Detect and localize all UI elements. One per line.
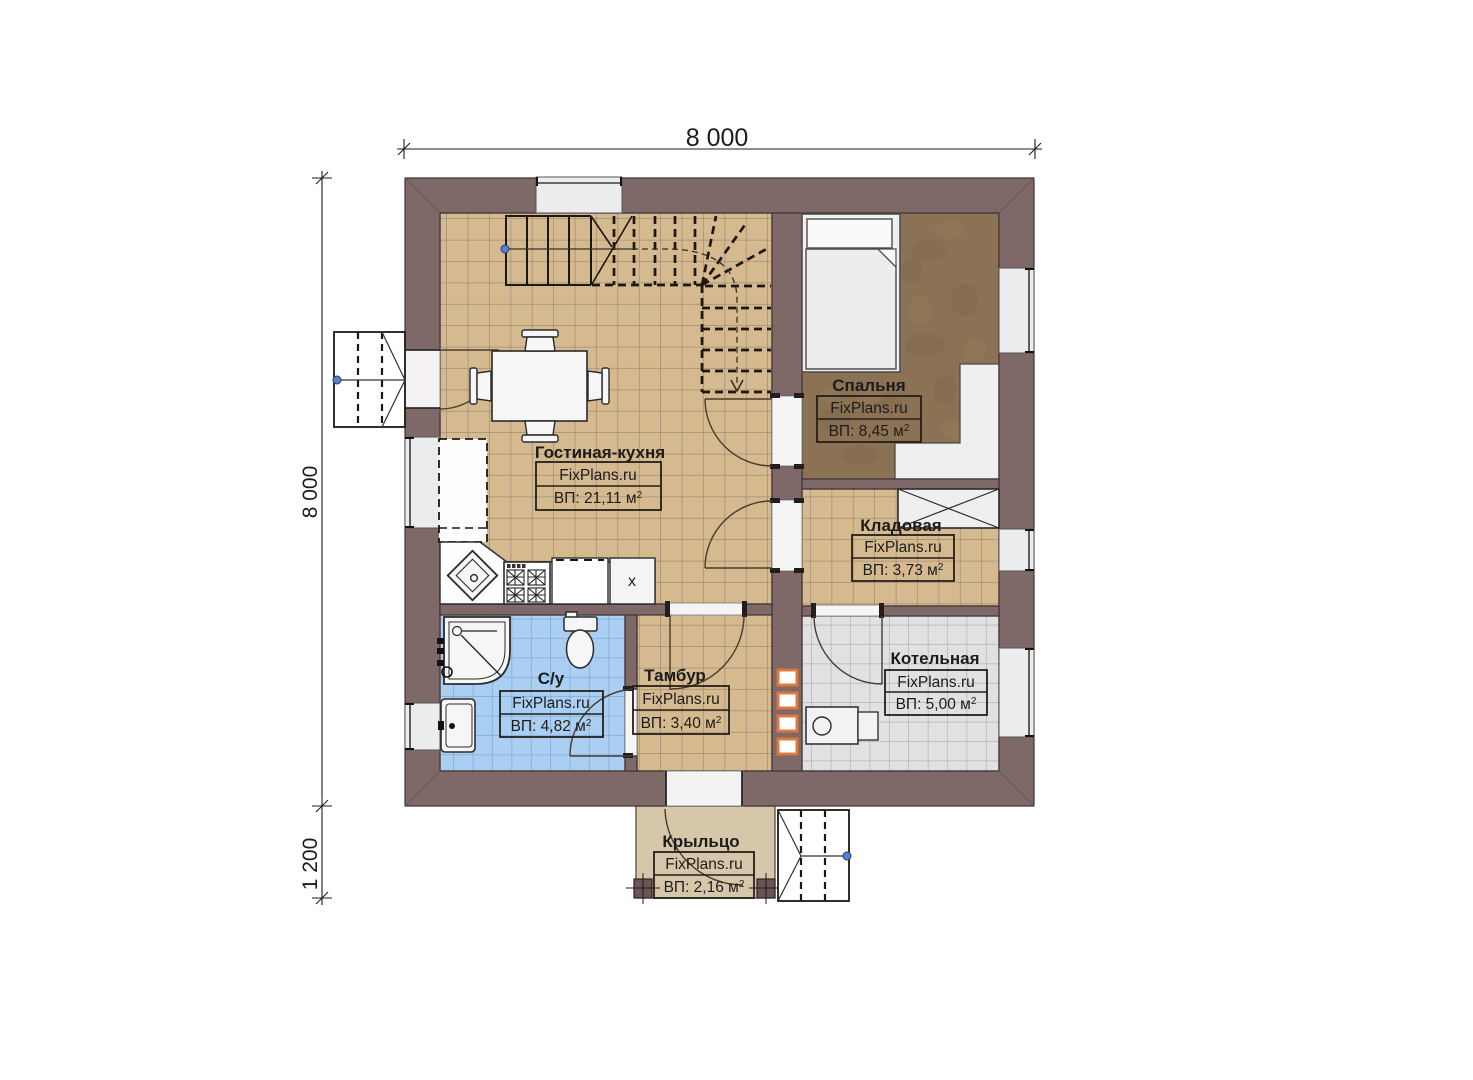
svg-text:ВП: 3,73 м2: ВП: 3,73 м2 bbox=[863, 562, 944, 579]
svg-text:ВП: 5,00 м2: ВП: 5,00 м2 bbox=[896, 696, 977, 713]
svg-text:1 200: 1 200 bbox=[299, 838, 322, 891]
svg-text:FixPlans.ru: FixPlans.ru bbox=[512, 695, 590, 712]
svg-text:Спальня: Спальня bbox=[832, 376, 905, 395]
svg-text:FixPlans.ru: FixPlans.ru bbox=[642, 691, 720, 708]
svg-text:8 000: 8 000 bbox=[686, 124, 749, 152]
svg-text:8 000: 8 000 bbox=[299, 466, 322, 519]
svg-text:Крыльцо: Крыльцо bbox=[662, 832, 739, 851]
svg-text:Котельная: Котельная bbox=[890, 649, 979, 668]
svg-text:Кладовая: Кладовая bbox=[860, 516, 941, 535]
svg-text:ВП: 21,11 м2: ВП: 21,11 м2 bbox=[554, 490, 643, 507]
svg-text:FixPlans.ru: FixPlans.ru bbox=[897, 674, 975, 691]
svg-text:ВП: 8,45 м2: ВП: 8,45 м2 bbox=[829, 423, 910, 440]
svg-text:FixPlans.ru: FixPlans.ru bbox=[665, 856, 743, 873]
svg-text:Гостиная-кухня: Гостиная-кухня bbox=[535, 443, 665, 462]
svg-text:FixPlans.ru: FixPlans.ru bbox=[864, 539, 942, 556]
svg-text:ВП: 2,16 м2: ВП: 2,16 м2 bbox=[664, 879, 745, 896]
svg-text:ВП: 3,40 м2: ВП: 3,40 м2 bbox=[641, 715, 722, 732]
svg-text:Тамбур: Тамбур bbox=[644, 666, 706, 685]
svg-text:ВП: 4,82 м2: ВП: 4,82 м2 bbox=[511, 718, 592, 735]
svg-text:FixPlans.ru: FixPlans.ru bbox=[830, 400, 908, 417]
svg-text:x: x bbox=[628, 573, 636, 590]
svg-text:С/у: С/у bbox=[538, 669, 565, 688]
svg-text:FixPlans.ru: FixPlans.ru bbox=[559, 467, 637, 484]
